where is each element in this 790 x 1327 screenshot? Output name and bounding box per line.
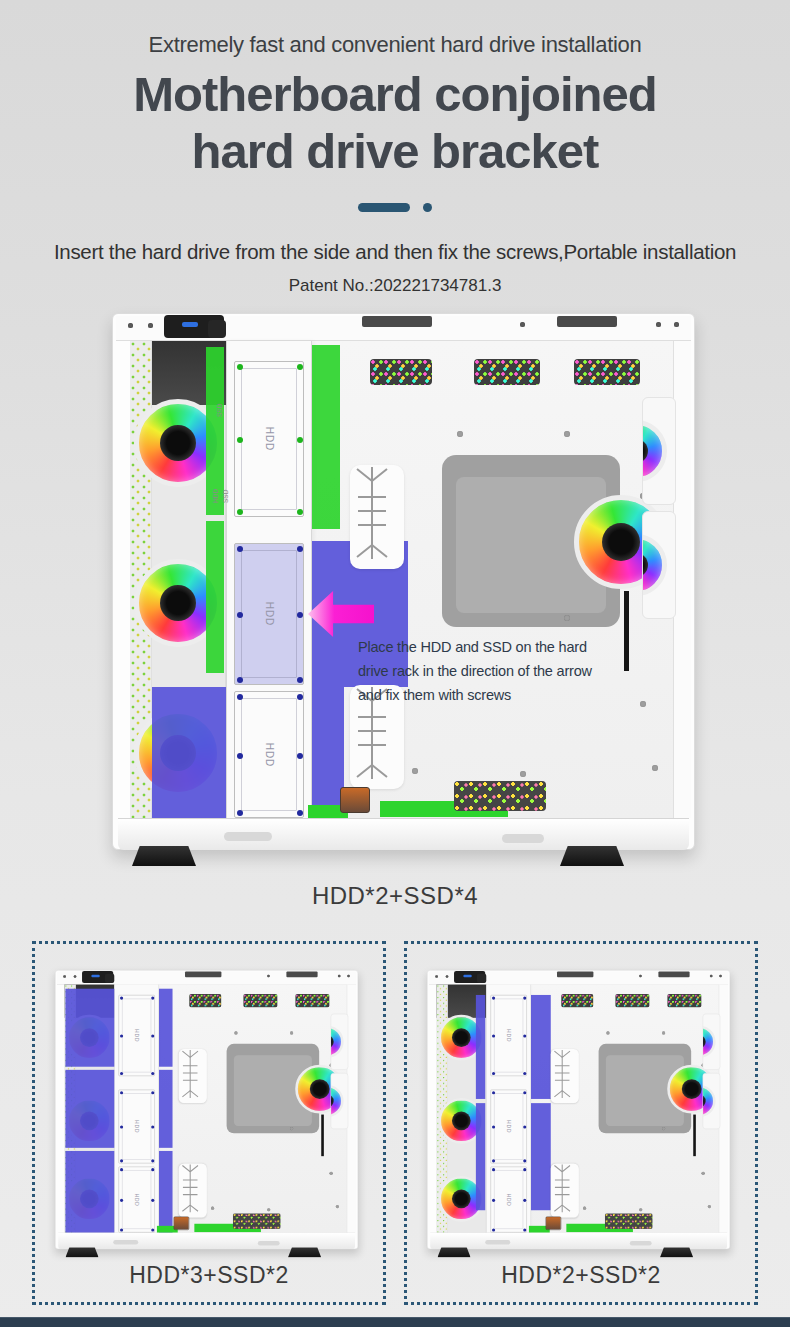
- top-tab: [557, 316, 617, 327]
- latch-led-icon: [182, 322, 198, 327]
- hdd-highlight: [65, 1070, 114, 1148]
- screw-dot-icon: [151, 1125, 154, 1128]
- bay-label: HDD: [264, 602, 275, 627]
- case-foot: [132, 846, 196, 866]
- bay-label: HDD: [264, 742, 275, 767]
- latch-led-icon: [463, 975, 471, 978]
- screw-dot-icon: [492, 1091, 495, 1094]
- screw-dot-icon: [237, 364, 243, 370]
- screw-dot-icon: [120, 1159, 123, 1162]
- rgb-fan-icon: [642, 420, 667, 482]
- fan-mount-plate: [179, 1049, 207, 1103]
- screw-dot-icon: [297, 546, 303, 552]
- screw-dot-icon: [492, 1168, 495, 1171]
- top-tab: [658, 972, 689, 978]
- screw-icon: [702, 1172, 705, 1175]
- screw-dot-icon: [151, 1034, 154, 1037]
- screw-icon: [330, 1172, 333, 1175]
- screw-dot-icon: [120, 1125, 123, 1128]
- right-fan-frame: [331, 1014, 349, 1070]
- screw-dot-icon: [297, 364, 303, 370]
- top-latch-hook: [477, 974, 486, 983]
- top-tab: [185, 972, 221, 978]
- rail-slot: [485, 1240, 510, 1245]
- fan-cable: [624, 591, 629, 671]
- screw-dot-icon: [492, 1159, 495, 1162]
- screw-dot-icon: [151, 1228, 154, 1231]
- rgb-vent-grille-icon: [474, 359, 540, 385]
- pc-case-scene: HDDHDDHDD: [427, 970, 730, 1259]
- screw-dot-icon: [523, 1228, 526, 1231]
- screw-dot-icon: [237, 437, 243, 443]
- screw-dot-icon: [492, 1125, 495, 1128]
- hdd-highlight: [65, 989, 114, 1067]
- screw-icon: [564, 615, 570, 621]
- screw-dot-icon: [492, 997, 495, 1000]
- rgb-vent-grille-icon: [615, 994, 649, 1008]
- main-figure-caption: HDD*2+SSD*4: [0, 882, 790, 910]
- title-divider: [0, 203, 790, 212]
- screw-dot-icon: [523, 1199, 526, 1202]
- case-foot: [437, 1247, 470, 1257]
- screw-icon: [639, 975, 642, 978]
- psu-vent-grille-icon: [454, 781, 546, 811]
- footer-accent-bar: [0, 1317, 790, 1327]
- fan-cable: [693, 1115, 696, 1157]
- drive-bay: HDD: [118, 995, 154, 1076]
- case-bottom-rail: [58, 1233, 355, 1250]
- rgb-vent-grille-icon: [370, 359, 432, 385]
- screw-dot-icon: [151, 1199, 154, 1202]
- top-tab: [286, 972, 317, 978]
- fan-mount-plate: [551, 1163, 579, 1217]
- variant-figure-hdd3-ssd2: HDDHDDHDD HDD*3+SSD*2: [32, 941, 386, 1305]
- right-fan-frame: [703, 1014, 721, 1070]
- right-fan-frame: [331, 1073, 349, 1129]
- screw-icon: [606, 1031, 609, 1034]
- rgb-hub: [340, 787, 370, 813]
- annotation-line: Place the HDD and SSD on the hard: [358, 635, 588, 659]
- screw-dot-icon: [151, 1091, 154, 1094]
- hdd-highlight: [531, 1103, 551, 1210]
- screw-icon: [412, 768, 418, 774]
- fan-mount-plate: [551, 1049, 579, 1103]
- screw-dot-icon: [237, 677, 243, 683]
- screw-icon: [520, 322, 525, 327]
- pc-case-scene: HDDHDDHDDSSDHDDSSDPlace the HDD and SSD …: [112, 313, 695, 868]
- screw-dot-icon: [237, 694, 243, 700]
- top-latch-hook: [105, 974, 114, 983]
- case-foot: [660, 1247, 693, 1257]
- screw-dot-icon: [120, 1034, 123, 1037]
- header-tagline: Extremely fast and convenient hard drive…: [0, 32, 790, 58]
- screw-icon: [148, 323, 153, 328]
- variant-case-2: HDDHDDHDD: [427, 970, 730, 1259]
- bay-label: HDD: [506, 1193, 512, 1206]
- case-bottom-rail: [118, 818, 689, 850]
- annotation-line: and fix them with screws: [358, 683, 588, 707]
- annotation-line: drive rack in the direction of the arrow: [358, 659, 588, 683]
- patent-number: Patent No.:202221734781.3: [0, 276, 790, 296]
- rgb-fan-icon: [703, 1085, 716, 1117]
- screw-dot-icon: [151, 1168, 154, 1171]
- screw-dot-icon: [523, 1091, 526, 1094]
- screw-icon: [640, 701, 646, 707]
- bay-label: HDD: [134, 1120, 140, 1133]
- drive-bay: HDD: [118, 1167, 154, 1233]
- screw-dot-icon: [492, 1034, 495, 1037]
- hdd-highlight: [531, 995, 551, 1099]
- drive-bay: HDD: [234, 543, 304, 685]
- right-fan-frame: [703, 1073, 721, 1129]
- screw-icon: [267, 1208, 270, 1211]
- ssd-micro-label: SSD: [222, 487, 230, 503]
- hdd-highlight: [65, 1151, 114, 1233]
- page: Extremely fast and convenient hard drive…: [0, 0, 790, 1327]
- rgb-fan-icon: [703, 1026, 716, 1058]
- screw-dot-icon: [523, 1072, 526, 1075]
- screw-dot-icon: [120, 1199, 123, 1202]
- variant-figure-hdd2-ssd2: HDDHDDHDD HDD*2+SSD*2: [404, 941, 758, 1305]
- ssd-highlight: [312, 345, 340, 529]
- annotation-text: Place the HDD and SSD on the harddrive r…: [358, 635, 588, 715]
- rgb-fan-icon: [642, 534, 667, 596]
- screw-dot-icon: [237, 509, 243, 515]
- rgb-vent-grille-icon: [574, 359, 640, 385]
- variant-case-1: HDDHDDHDD: [55, 970, 358, 1259]
- variant-caption: HDD*2+SSD*2: [407, 1262, 755, 1289]
- screw-icon: [435, 975, 438, 978]
- screw-icon: [662, 1031, 665, 1034]
- screw-dot-icon: [297, 694, 303, 700]
- screw-dot-icon: [120, 1072, 123, 1075]
- screw-dot-icon: [151, 1159, 154, 1162]
- fan-mount-plate: [179, 1163, 207, 1217]
- rgb-hub: [174, 1216, 190, 1230]
- screw-icon: [63, 975, 66, 978]
- right-fan-frame: [642, 511, 676, 619]
- rgb-vent-grille-icon: [561, 994, 593, 1008]
- screw-dot-icon: [151, 1072, 154, 1075]
- drive-bay: HDD: [490, 995, 526, 1076]
- bay-label: HDD: [506, 1120, 512, 1133]
- latch-led-icon: [91, 975, 99, 978]
- rgb-vent-grille-icon: [189, 994, 221, 1008]
- hdd-highlight: [159, 1070, 173, 1148]
- drive-bay: HDD: [118, 1090, 154, 1164]
- psu-vent-grille-icon: [605, 1213, 653, 1229]
- variant-caption: HDD*3+SSD*2: [35, 1262, 383, 1289]
- screw-icon: [74, 975, 77, 978]
- screw-icon: [662, 1127, 665, 1130]
- main-case-figure: HDDHDDHDDSSDHDDSSDPlace the HDD and SSD …: [112, 313, 695, 868]
- rail-slot: [258, 1241, 280, 1246]
- psu-vent-grille-icon: [233, 1213, 281, 1229]
- drive-bay: HDD: [490, 1167, 526, 1233]
- screw-icon: [336, 1205, 339, 1208]
- drive-bay: HDD: [234, 691, 304, 818]
- screw-dot-icon: [237, 753, 243, 759]
- screw-icon: [128, 323, 133, 328]
- bay-label: HDD: [264, 427, 275, 452]
- screw-dot-icon: [523, 997, 526, 1000]
- screw-dot-icon: [492, 1199, 495, 1202]
- screw-icon: [710, 975, 713, 978]
- rgb-vent-grille-icon: [667, 994, 701, 1008]
- screw-dot-icon: [523, 1125, 526, 1128]
- screw-icon: [234, 1031, 237, 1034]
- rail-slot: [113, 1240, 138, 1245]
- drive-bay: HDD: [234, 361, 304, 517]
- hdd-micro-label: HDD: [212, 487, 220, 503]
- screw-dot-icon: [297, 509, 303, 515]
- screw-icon: [656, 322, 661, 327]
- screw-icon: [719, 975, 722, 978]
- rail-slot: [224, 832, 272, 841]
- screw-dot-icon: [151, 997, 154, 1000]
- rail-slot: [630, 1241, 652, 1246]
- rgb-hub: [546, 1216, 562, 1230]
- top-latch-hook: [208, 320, 226, 338]
- screw-icon: [457, 431, 463, 437]
- hdd-highlight: [159, 989, 173, 1067]
- screw-icon: [564, 431, 570, 437]
- fan-cable: [321, 1115, 324, 1157]
- screw-dot-icon: [237, 546, 243, 552]
- rgb-vent-grille-icon: [295, 994, 329, 1008]
- hdd-highlight: [476, 1103, 485, 1210]
- case-foot: [288, 1247, 321, 1257]
- bay-label: HDD: [134, 1029, 140, 1042]
- right-fan-frame: [642, 397, 676, 505]
- divider-dot-icon: [423, 203, 432, 212]
- screw-icon: [520, 771, 526, 777]
- screw-icon: [338, 975, 341, 978]
- top-tab: [557, 972, 593, 978]
- screw-dot-icon: [492, 1072, 495, 1075]
- screw-dot-icon: [523, 1034, 526, 1037]
- ssd-highlight: [206, 521, 224, 673]
- divider-dash-icon: [358, 203, 410, 212]
- screw-dot-icon: [297, 753, 303, 759]
- screw-icon: [290, 1031, 293, 1034]
- screw-icon: [708, 1205, 711, 1208]
- bay-label: HDD: [134, 1193, 140, 1206]
- rail-slot: [502, 834, 544, 843]
- screw-dot-icon: [120, 997, 123, 1000]
- description-text: Insert the hard drive from the side and …: [0, 240, 790, 264]
- screw-icon: [583, 1207, 586, 1210]
- screw-dot-icon: [120, 1091, 123, 1094]
- screw-dot-icon: [297, 677, 303, 683]
- hdd-highlight: [152, 687, 226, 818]
- title-line-2: hard drive bracket: [192, 124, 599, 178]
- page-title: Motherboard conjoined hard drive bracket: [0, 66, 790, 180]
- screw-icon: [674, 322, 679, 327]
- screw-icon: [639, 1208, 642, 1211]
- screw-icon: [267, 975, 270, 978]
- rgb-fan-icon: [331, 1026, 344, 1058]
- screw-dot-icon: [120, 1168, 123, 1171]
- screw-dot-icon: [523, 1168, 526, 1171]
- case-foot: [560, 846, 624, 866]
- title-line-1: Motherboard conjoined: [133, 67, 656, 121]
- screw-icon: [290, 1127, 293, 1130]
- bay-label: HDD: [506, 1029, 512, 1042]
- screw-dot-icon: [120, 1228, 123, 1231]
- hdd-highlight: [159, 1151, 173, 1233]
- case-foot: [65, 1247, 98, 1257]
- top-tab: [362, 316, 432, 327]
- screw-dot-icon: [523, 1159, 526, 1162]
- rgb-vent-grille-icon: [243, 994, 277, 1008]
- drive-bay: HDD: [490, 1090, 526, 1164]
- screw-icon: [652, 765, 658, 771]
- screw-dot-icon: [297, 437, 303, 443]
- screw-icon: [347, 975, 350, 978]
- case-bottom-rail: [430, 1233, 727, 1250]
- screw-dot-icon: [492, 1228, 495, 1231]
- screw-dot-icon: [297, 810, 303, 816]
- screw-icon: [211, 1207, 214, 1210]
- screw-dot-icon: [237, 810, 243, 816]
- screw-dot-icon: [297, 612, 303, 618]
- pc-case-scene: HDDHDDHDD: [55, 970, 358, 1259]
- rgb-fan-icon: [331, 1085, 344, 1117]
- ssd-micro-label: SSD: [216, 401, 224, 417]
- screw-icon: [446, 975, 449, 978]
- hdd-highlight: [476, 995, 485, 1099]
- screw-dot-icon: [237, 612, 243, 618]
- fan-mount-plate: [350, 465, 404, 569]
